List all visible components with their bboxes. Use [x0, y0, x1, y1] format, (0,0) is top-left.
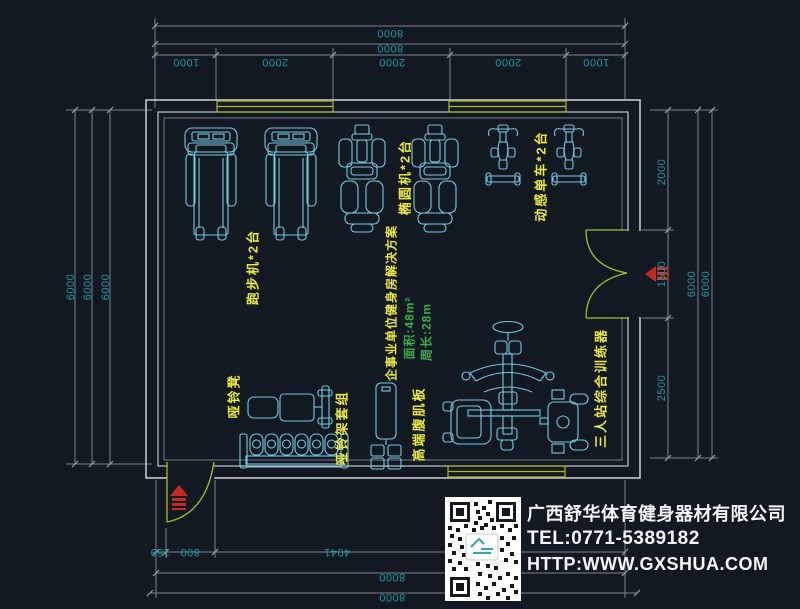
dim-top-overall-inner: 8000: [377, 42, 403, 54]
label-spin-bike: 动感单车*2台: [531, 130, 550, 221]
dim-top-seg-2: 2000: [262, 56, 288, 68]
dumbbell-bench: [248, 386, 332, 428]
ab-board: [371, 383, 401, 469]
dim-top-overall-outer: 8000: [377, 27, 403, 39]
company-website: HTTP:WWW.GXSHUA.COM: [527, 554, 768, 575]
dim-bottom-overall-inner: 8000: [379, 571, 405, 583]
treadmill-1: [185, 128, 237, 240]
dim-right-seg-1: 2000: [656, 159, 668, 185]
dim-left-1: 6000: [65, 274, 77, 300]
cad-floor-plan: 8000 8000 1000 2000 2000 2000 1000 6000 …: [0, 0, 800, 609]
treadmill-2: [265, 128, 317, 240]
dim-top-seg-5: 1000: [583, 56, 609, 68]
qr-code: [445, 497, 521, 601]
dim-bottom-seg-1: 159: [150, 546, 170, 558]
dim-top-seg-4: 2000: [495, 56, 521, 68]
label-treadmill: 跑步机*2台: [243, 229, 262, 305]
multi-station-trainer: [443, 322, 588, 454]
elliptical-2: [412, 125, 458, 232]
spin-bike-1: [486, 125, 520, 185]
company-tel: TEL:0771-5389182: [527, 528, 700, 550]
dim-left-3: 6000: [100, 274, 112, 300]
label-elliptical: 椭圆机*2台: [395, 139, 414, 215]
dim-right-overall-2: 6000: [700, 271, 712, 297]
dim-top-seg-1: 1000: [173, 56, 199, 68]
dim-bottom-seg-3: 4041: [324, 546, 350, 558]
dim-right-seg-2: 1500: [656, 261, 668, 287]
entrance-arrow-bottom-icon: [170, 485, 188, 510]
dim-left-2: 6000: [82, 274, 94, 300]
dim-bottom-seg-2: 800: [180, 546, 200, 558]
elliptical-1: [339, 125, 385, 232]
qr-center-logo: [466, 534, 498, 560]
dim-right-overall-1: 6000: [686, 271, 698, 297]
dim-right-seg-3: 2500: [656, 375, 668, 401]
plan-title: 企事业单位健身房解决方案: [383, 225, 400, 381]
dim-top-seg-3: 2000: [379, 56, 405, 68]
spin-bike-2: [552, 125, 586, 185]
label-multi-station-trainer: 三人站综合训练器: [591, 328, 610, 448]
dim-bottom-overall-outer: 8000: [379, 591, 405, 603]
label-dumbbell-rack: 哑铃架套组: [332, 390, 351, 465]
plan-area: 面积:48m²: [401, 296, 418, 359]
label-ab-board: 高端腹肌板: [409, 386, 428, 461]
company-name: 广西舒华体育健身器材有限公司: [527, 500, 786, 526]
plan-perimeter: 周长:28m: [418, 303, 435, 361]
label-dumbbell-bench: 哑铃凳: [224, 373, 243, 418]
